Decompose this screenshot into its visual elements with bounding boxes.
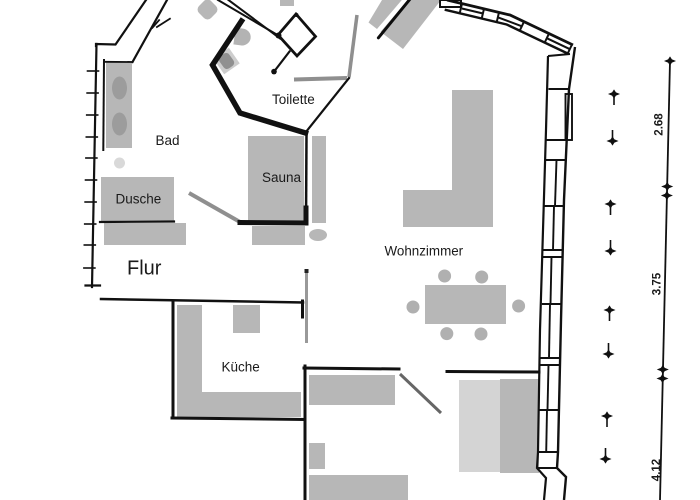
svg-text:Sauna: Sauna xyxy=(262,170,302,185)
svg-text:Wohnzimmer: Wohnzimmer xyxy=(385,244,464,259)
svg-text:3.75: 3.75 xyxy=(651,272,663,295)
svg-text:2.68: 2.68 xyxy=(654,113,666,136)
svg-text:Toilette: Toilette xyxy=(272,92,315,107)
svg-text:Dusche: Dusche xyxy=(116,192,162,207)
svg-text:Flur: Flur xyxy=(127,258,162,280)
svg-text:Küche: Küche xyxy=(222,360,260,375)
svg-text:Bad: Bad xyxy=(156,133,180,148)
svg-text:4.12: 4.12 xyxy=(651,459,663,481)
